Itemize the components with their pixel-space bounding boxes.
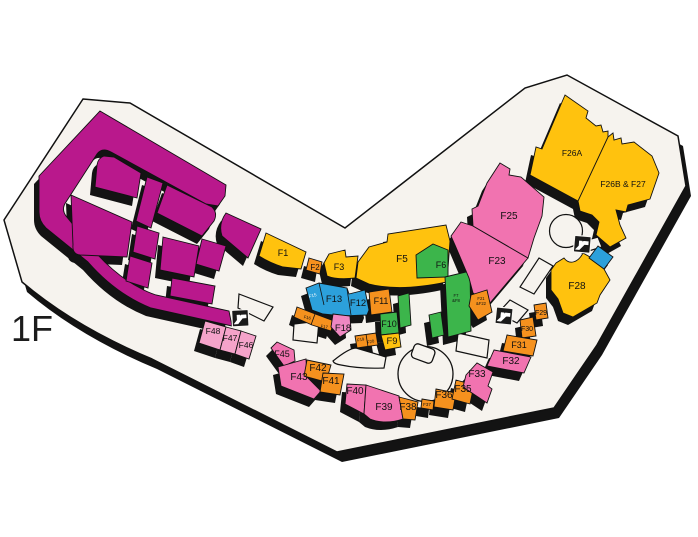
svg-text:F36: F36 [435,390,453,401]
svg-text:F26A: F26A [562,148,583,158]
svg-text:1F: 1F [11,308,53,349]
svg-text:F25: F25 [500,211,518,222]
svg-text:F46: F46 [239,340,254,350]
svg-text:F47: F47 [223,333,238,343]
svg-text:F41: F41 [322,376,340,387]
svg-text:&F8: &F8 [452,298,460,303]
svg-text:F42: F42 [309,363,327,374]
svg-text:F6: F6 [436,260,447,270]
svg-text:F26B & F27: F26B & F27 [600,179,646,189]
svg-text:F13: F13 [326,294,342,305]
svg-text:F31: F31 [511,340,527,350]
svg-text:F37: F37 [423,402,431,407]
svg-text:F11: F11 [374,296,389,306]
svg-text:F29: F29 [535,310,547,317]
svg-text:F10: F10 [381,319,397,329]
svg-text:F18: F18 [335,323,351,334]
svg-text:F38: F38 [399,402,417,413]
svg-text:F5: F5 [396,254,408,265]
svg-text:F28: F28 [568,281,586,292]
svg-text:F2: F2 [310,263,320,272]
svg-text:F40: F40 [346,386,364,397]
svg-text:F33: F33 [468,369,486,380]
svg-text:F3: F3 [334,262,345,272]
svg-text:F9: F9 [386,336,397,347]
svg-text:F30: F30 [521,326,533,333]
svg-text:F35: F35 [454,384,472,395]
svg-text:F43: F43 [290,372,308,383]
svg-text:F23: F23 [488,256,506,267]
svg-text:F1: F1 [278,248,289,258]
svg-text:F12: F12 [350,298,366,309]
svg-text:F39: F39 [375,402,393,413]
svg-text:F32: F32 [502,356,520,367]
svg-text:F48: F48 [206,326,221,336]
svg-text:&F22: &F22 [476,301,487,306]
svg-text:F45: F45 [274,349,290,359]
